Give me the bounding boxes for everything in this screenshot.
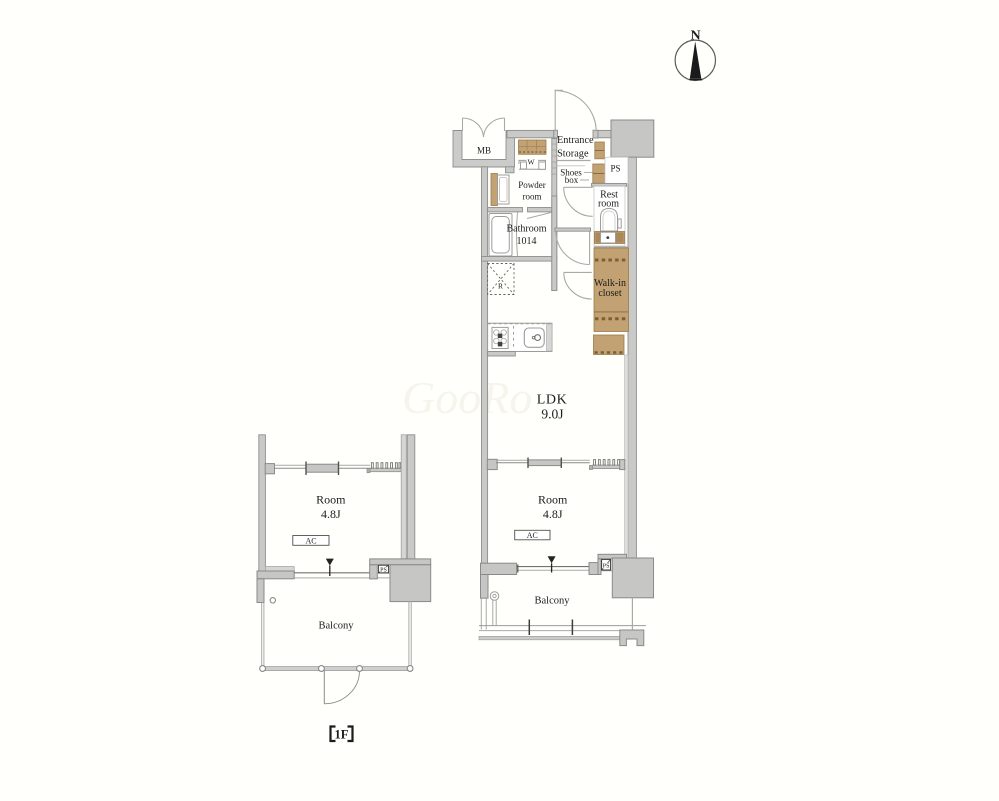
svg-text:GooRo: GooRo [402,372,532,423]
svg-text:PS: PS [610,164,620,174]
svg-text:4.8J: 4.8J [321,507,341,521]
svg-text:4.8J: 4.8J [543,507,563,521]
svg-text:PS: PS [380,568,387,574]
svg-text:room: room [598,199,619,210]
svg-text:LDK: LDK [537,393,568,408]
svg-text:N: N [690,29,700,44]
svg-text:PS: PS [603,563,610,569]
svg-text:Room: Room [316,493,346,507]
svg-text:1F: 1F [335,728,349,742]
svg-text:Storage: Storage [557,149,589,160]
svg-text:AC: AC [527,531,538,540]
svg-text:R: R [498,282,503,291]
svg-text:MB: MB [477,146,491,156]
svg-text:Balcony: Balcony [319,621,355,632]
svg-text:Powder: Powder [518,180,546,190]
svg-text:Entrance: Entrance [557,135,594,146]
svg-text:Balcony: Balcony [535,596,571,607]
svg-text:Room: Room [538,493,568,507]
svg-text:Bathroom: Bathroom [507,224,547,235]
svg-text:W: W [527,158,535,167]
svg-text:closet: closet [598,288,622,299]
svg-text:1014: 1014 [517,236,537,247]
svg-text:9.0J: 9.0J [541,407,563,422]
svg-text:box: box [565,175,579,185]
svg-text:AC: AC [305,536,316,545]
svg-text:room: room [523,192,542,202]
